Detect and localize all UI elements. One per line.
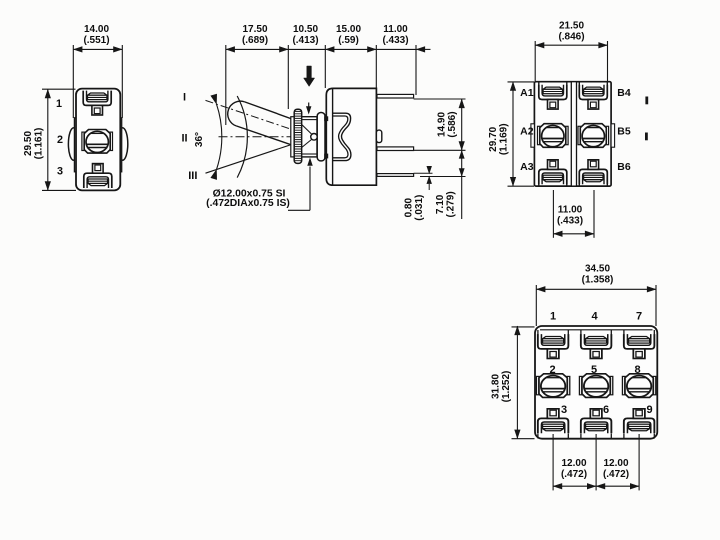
- svg-text:11.00: 11.00: [558, 205, 583, 216]
- svg-text:B6: B6: [617, 161, 631, 173]
- svg-text:(.433): (.433): [382, 35, 408, 46]
- svg-text:14.00: 14.00: [84, 24, 109, 35]
- svg-text:(.472): (.472): [603, 469, 629, 480]
- svg-text:(.433): (.433): [557, 216, 583, 227]
- svg-text:7: 7: [636, 310, 642, 322]
- svg-text:21.50: 21.50: [559, 21, 584, 32]
- svg-text:(.413): (.413): [292, 35, 318, 46]
- svg-text:(.279): (.279): [445, 191, 456, 217]
- svg-text:(1.169): (1.169): [498, 123, 509, 155]
- svg-text:(1.358): (1.358): [582, 275, 614, 286]
- svg-text:12.00: 12.00: [603, 458, 628, 469]
- svg-text:A1: A1: [520, 87, 534, 99]
- svg-text:5: 5: [591, 364, 597, 376]
- svg-text:B5: B5: [617, 126, 631, 138]
- svg-text:A2: A2: [520, 126, 534, 138]
- svg-text:I: I: [183, 91, 186, 103]
- svg-text:14.90: 14.90: [437, 112, 448, 137]
- svg-text:7.10: 7.10: [435, 194, 446, 214]
- svg-text:12.00: 12.00: [561, 458, 586, 469]
- svg-text:A3: A3: [520, 161, 534, 173]
- svg-text:(.586): (.586): [447, 111, 458, 137]
- svg-text:1: 1: [56, 98, 62, 110]
- svg-text:8: 8: [634, 364, 640, 376]
- svg-text:17.50: 17.50: [242, 24, 267, 35]
- svg-text:(.031): (.031): [414, 195, 425, 221]
- svg-text:(.59): (.59): [338, 35, 359, 46]
- svg-text:(.472): (.472): [561, 469, 587, 480]
- svg-text:3: 3: [57, 166, 63, 178]
- svg-text:9: 9: [646, 404, 652, 416]
- svg-text:(.689): (.689): [242, 35, 268, 46]
- svg-text:(.551): (.551): [83, 35, 109, 46]
- svg-text:36°: 36°: [194, 132, 205, 147]
- svg-text:2: 2: [549, 364, 555, 376]
- svg-text:29.70: 29.70: [488, 126, 499, 151]
- svg-text:B4: B4: [617, 87, 631, 99]
- svg-text:10.50: 10.50: [293, 24, 318, 35]
- svg-text:31.80: 31.80: [491, 374, 502, 399]
- svg-text:(.472DIAx0.75 IS): (.472DIAx0.75 IS): [206, 198, 290, 209]
- svg-text:(1.252): (1.252): [501, 371, 512, 403]
- svg-text:29.50: 29.50: [23, 131, 34, 156]
- svg-text:34.50: 34.50: [585, 264, 610, 275]
- svg-text:15.00: 15.00: [336, 24, 361, 35]
- svg-text:1: 1: [550, 310, 556, 322]
- svg-text:(1.161): (1.161): [34, 128, 45, 160]
- svg-text:3: 3: [561, 404, 567, 416]
- svg-text:2: 2: [57, 134, 63, 146]
- svg-text:11.00: 11.00: [383, 24, 408, 35]
- svg-text:6: 6: [603, 404, 609, 416]
- svg-text:(.846): (.846): [558, 32, 584, 43]
- svg-text:0.80: 0.80: [404, 198, 415, 218]
- svg-text:4: 4: [591, 310, 598, 322]
- svg-text:II: II: [181, 132, 187, 144]
- svg-text:III: III: [188, 170, 197, 182]
